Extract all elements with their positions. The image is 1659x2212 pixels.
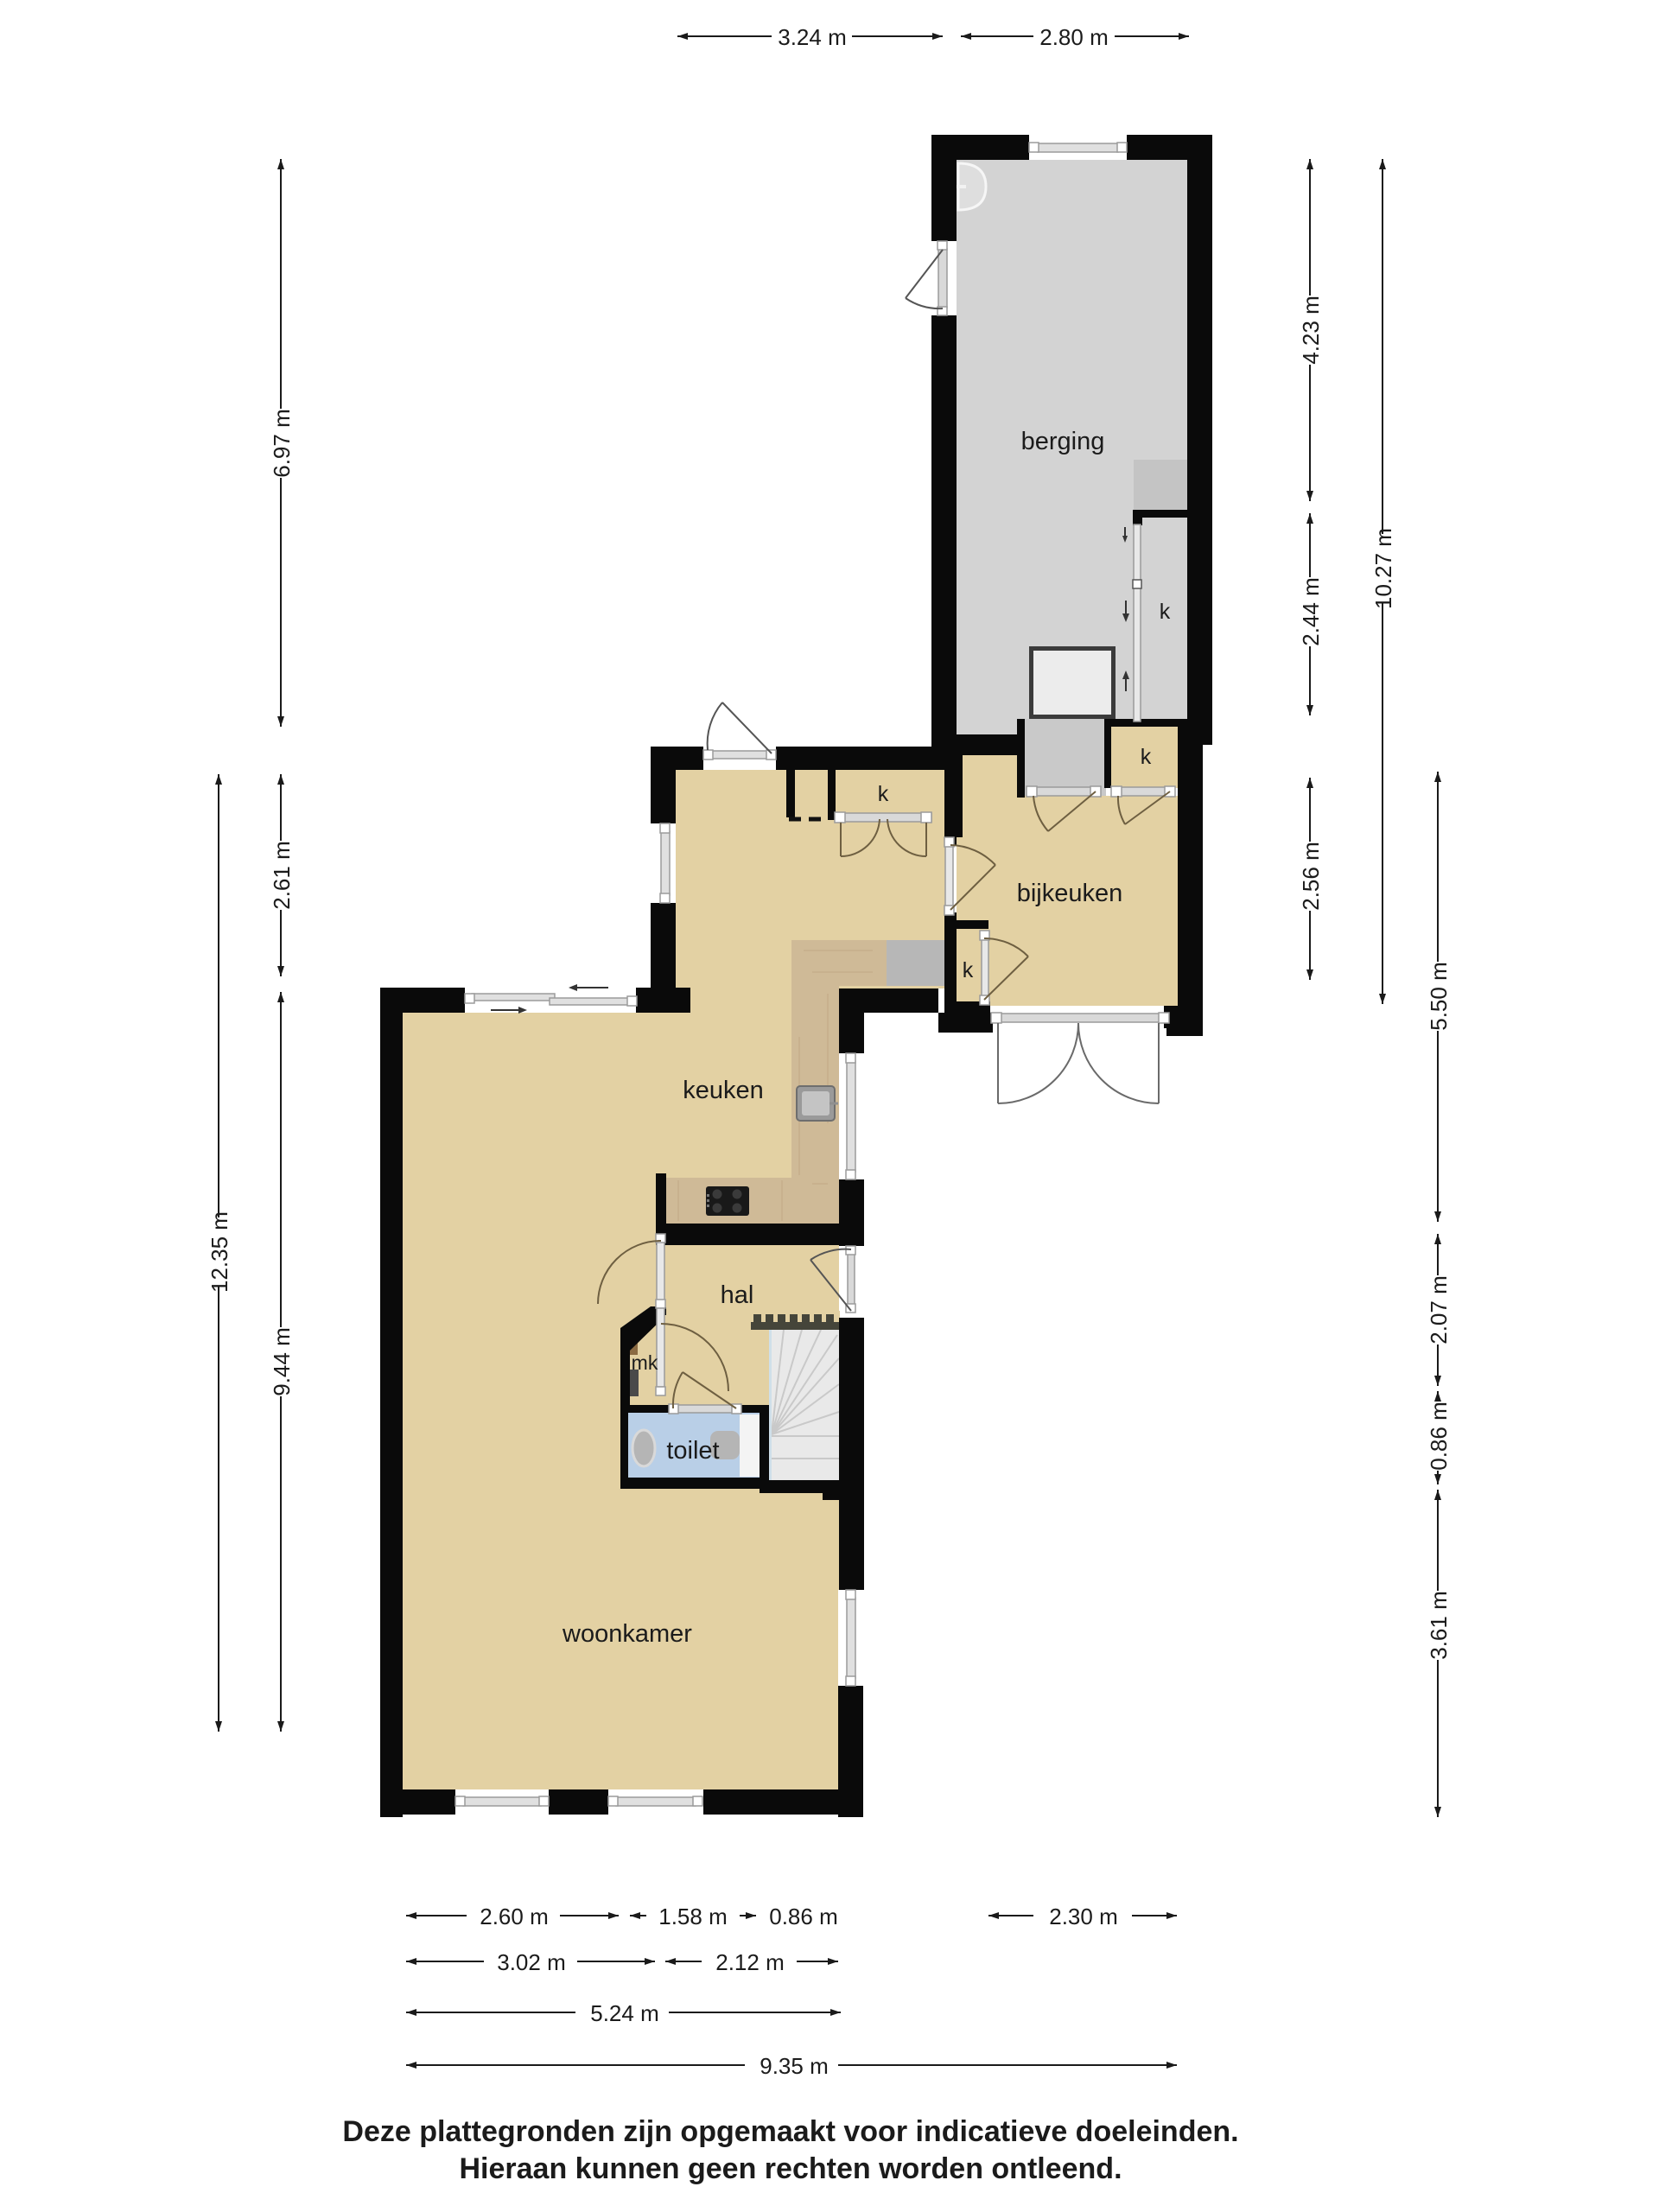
svg-text:4.23 m: 4.23 m: [1298, 296, 1324, 365]
svg-text:3.24 m: 3.24 m: [778, 24, 847, 50]
svg-text:hal: hal: [721, 1281, 754, 1309]
svg-text:3.02 m: 3.02 m: [497, 1949, 566, 1975]
svg-text:mk: mk: [632, 1351, 658, 1374]
svg-text:woonkamer: woonkamer: [562, 1620, 692, 1648]
svg-text:k: k: [1141, 745, 1152, 769]
svg-text:k: k: [1160, 600, 1171, 624]
svg-text:9.35 m: 9.35 m: [760, 2053, 829, 2079]
svg-text:6.97 m: 6.97 m: [269, 409, 295, 478]
svg-text:bijkeuken: bijkeuken: [1017, 880, 1123, 907]
svg-text:2.60 m: 2.60 m: [480, 1904, 549, 1929]
svg-text:9.44 m: 9.44 m: [269, 1327, 295, 1396]
svg-text:keuken: keuken: [683, 1077, 764, 1104]
svg-text:0.86 m: 0.86 m: [769, 1904, 838, 1929]
svg-text:10.27 m: 10.27 m: [1370, 528, 1396, 609]
svg-text:3.61 m: 3.61 m: [1426, 1591, 1452, 1660]
svg-text:2.07 m: 2.07 m: [1426, 1275, 1452, 1344]
svg-text:Hieraan kunnen geen rechten wo: Hieraan kunnen geen rechten worden ontle…: [459, 2152, 1122, 2185]
svg-text:k: k: [878, 782, 889, 806]
svg-text:0.86 m: 0.86 m: [1426, 1402, 1452, 1471]
svg-text:1.58 m: 1.58 m: [658, 1904, 728, 1929]
svg-text:2.61 m: 2.61 m: [269, 841, 295, 910]
svg-text:2.44 m: 2.44 m: [1298, 577, 1324, 646]
svg-text:k: k: [963, 958, 974, 982]
svg-text:berging: berging: [1021, 428, 1105, 455]
svg-text:2.30 m: 2.30 m: [1049, 1904, 1118, 1929]
svg-text:2.80 m: 2.80 m: [1039, 24, 1109, 50]
svg-text:12.35 m: 12.35 m: [207, 1211, 232, 1293]
svg-text:5.24 m: 5.24 m: [590, 2000, 659, 2026]
svg-text:2.56 m: 2.56 m: [1298, 842, 1324, 911]
svg-text:Deze plattegronden zijn opgema: Deze plattegronden zijn opgemaakt voor i…: [342, 2115, 1238, 2148]
svg-text:5.50 m: 5.50 m: [1426, 962, 1452, 1031]
svg-text:2.12 m: 2.12 m: [715, 1949, 785, 1975]
svg-text:toilet: toilet: [666, 1437, 719, 1465]
